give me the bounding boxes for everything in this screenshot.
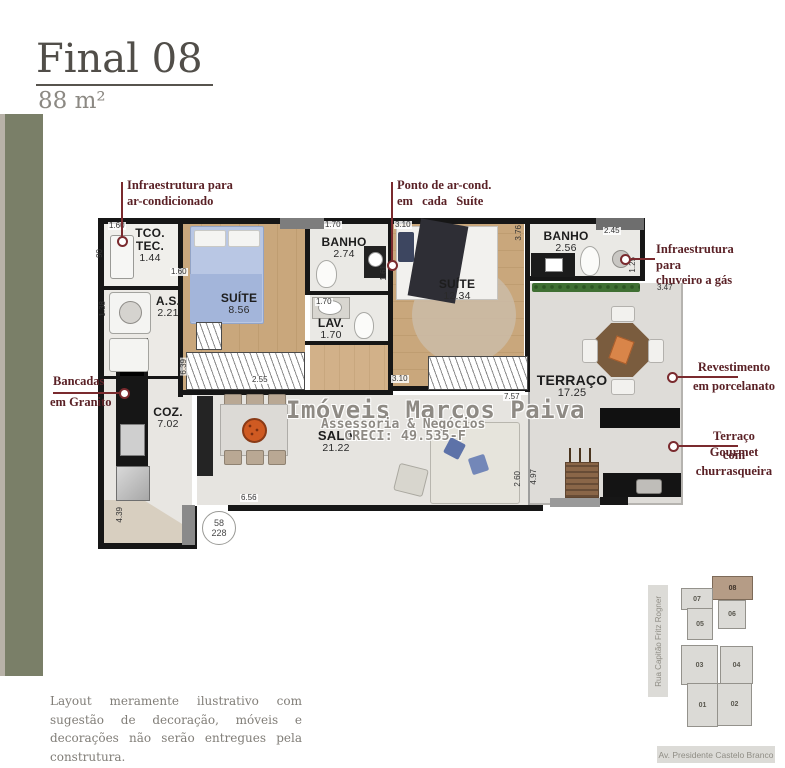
- basin-banho2: [545, 258, 563, 272]
- room-name: BANHO: [322, 235, 367, 249]
- keyplan-unit-07: 07: [681, 588, 713, 610]
- toilet-lav: [354, 312, 374, 339]
- annotation-granite: Bancadas: [53, 374, 104, 390]
- terraco-bottom-wall-seg: [600, 497, 628, 505]
- annotation-gas-marker: [620, 254, 631, 265]
- shaft-gray-1: [280, 218, 324, 229]
- kitchen-sink: [120, 424, 145, 456]
- room-area: 1.44: [126, 253, 174, 264]
- room-area: 8.56: [210, 305, 268, 316]
- washer-as-door: [119, 301, 142, 324]
- room-area: 1.70: [308, 330, 354, 341]
- dining-chair: [224, 450, 242, 465]
- terrace-chair-bottom: [611, 379, 635, 395]
- room-name: SUÍTE: [439, 277, 475, 291]
- bed-suite2-pillow: [398, 232, 414, 262]
- annotation-gourmet-marker: [668, 441, 679, 452]
- dim-suite1-bottom: 2.55: [251, 376, 269, 384]
- annotation-ac-point: Ponto de ar-cond. em cada Suíte: [397, 178, 491, 209]
- dim-sala-right: 2.60: [514, 470, 522, 488]
- room-area: 12.34: [425, 291, 489, 302]
- dim-lav-top: 1.70: [315, 298, 333, 306]
- watermark-creci: CRECI: 49.535-F: [344, 428, 466, 444]
- room-area: 7.02: [146, 419, 190, 430]
- annotation-porcelain-leader: [678, 376, 738, 378]
- dim-suite1-left: 6.39: [180, 358, 188, 376]
- annotation-line: com churrasqueira: [696, 448, 772, 478]
- keyplan-unit-03: 03: [681, 645, 718, 685]
- annotation-line: chuveiro a gás: [656, 273, 732, 287]
- annotation-granite-2: em Granito: [50, 395, 111, 411]
- bed-suite1-pillow-left: [194, 230, 226, 247]
- annotation-ac-point-marker: [387, 260, 398, 271]
- room-label-tco: TCO. TEC. 1.44: [126, 227, 174, 264]
- room-name: BANHO: [544, 229, 589, 243]
- fridge: [116, 466, 150, 501]
- dim-terraco-left: 4.97: [530, 468, 538, 486]
- keyplan-unit-05: 05: [687, 608, 713, 640]
- keyplan-unit-04: 04: [720, 646, 753, 684]
- dim-as-top: 1.60: [170, 268, 188, 276]
- unit-label: 03: [696, 662, 704, 669]
- room-label-suite1: SUÍTE 8.56: [210, 292, 268, 316]
- dining-chair: [268, 450, 286, 465]
- room-area: 21.22: [312, 443, 360, 454]
- annotation-line: Ponto de ar-cond.: [397, 178, 491, 192]
- page-area: 88 m²: [38, 88, 106, 114]
- annotation-porcelain-marker: [667, 372, 678, 383]
- annotation-line: em porcelanato: [693, 379, 775, 393]
- annotation-gas: Infraestrutura para chuveiro a gás: [656, 242, 752, 289]
- annotation-line: Infraestrutura para: [127, 178, 233, 192]
- room-name: LAV.: [318, 316, 344, 330]
- unit-label: 02: [731, 701, 739, 708]
- dim-banho2-top: 2.45: [603, 227, 621, 235]
- room-label-as: A.S. 2.21: [146, 295, 190, 319]
- annotation-gourmet-2: com churrasqueira: [686, 448, 782, 479]
- annotation-ac-infra: Infraestrutura para ar-condicionado: [127, 178, 233, 209]
- unit-badge-top: 58: [214, 518, 224, 528]
- bed-suite1-pillow-right: [228, 230, 260, 247]
- dim-as-left: 1.38: [99, 300, 107, 318]
- unit-label: 07: [693, 596, 701, 603]
- keyplan-unit-02: 02: [717, 683, 752, 726]
- room-name: TCO. TEC.: [135, 226, 164, 253]
- room-name: SUÍTE: [221, 291, 257, 305]
- annotation-line: ar-condicionado: [127, 194, 213, 208]
- room-area: 2.56: [536, 243, 596, 254]
- wardrobe-suite1: [186, 352, 305, 390]
- keyplan-street-left: Rua Capitão Fritz Rogner: [648, 585, 668, 697]
- hedge-planter: [532, 283, 640, 292]
- dim-suite2-right: 3.76: [515, 224, 523, 242]
- annotation-porcelain-2: em porcelanato: [692, 379, 776, 395]
- room-label-banho2: BANHO 2.56: [536, 230, 596, 254]
- room-name: COZ.: [153, 405, 182, 419]
- annotation-porcelain: Revestimento: [692, 360, 776, 376]
- room-label-lav: LAV. 1.70: [308, 317, 354, 341]
- room-area: 2.21: [146, 308, 190, 319]
- room-label-suite2: SUÍTE 12.34: [425, 278, 489, 302]
- grill-skewers: [569, 448, 593, 462]
- wall-bottom-sala: [228, 505, 543, 511]
- annotation-ac-infra-leader: [121, 182, 123, 237]
- hall-floor: [310, 345, 388, 390]
- dining-chair: [246, 450, 264, 465]
- unit-label: 04: [733, 662, 741, 669]
- annotation-granite-leader: [53, 392, 123, 394]
- keyplan-street-bottom: Av. Presidente Castelo Branco: [657, 746, 775, 763]
- dim-coz-left: 4.39: [116, 506, 124, 524]
- unit-label: 01: [699, 702, 707, 709]
- annotation-line: Infraestrutura para: [656, 242, 734, 272]
- grill-churrasqueira: [565, 462, 599, 498]
- entry-door: [182, 505, 195, 545]
- keyplan-unit-08: 08: [712, 576, 753, 600]
- terraco-right-edge: [681, 283, 683, 505]
- wall-h-tco-bottom: [98, 286, 183, 290]
- annotation-line: em cada Suíte: [397, 194, 483, 208]
- terrace-chair-top: [611, 306, 635, 322]
- dim-tco-left: 90: [96, 248, 104, 259]
- terrace-sink: [636, 479, 662, 494]
- annotation-line: Revestimento: [698, 360, 770, 374]
- room-name: TERRAÇO: [537, 372, 608, 388]
- annotation-granite-marker: [119, 388, 130, 399]
- room-label-coz: COZ. 7.02: [146, 406, 190, 430]
- unit-label: 08: [729, 585, 737, 592]
- terrace-chair-left: [582, 339, 598, 363]
- accent-bar-olive: [5, 114, 43, 676]
- wall-banho1-left: [305, 222, 310, 295]
- room-name: A.S.: [156, 294, 180, 308]
- annotation-ac-point-leader: [391, 182, 393, 262]
- street-left-label: Rua Capitão Fritz Rogner: [654, 596, 663, 687]
- tv-panel: [197, 396, 213, 476]
- dim-suite2-top: 3.10: [394, 221, 412, 229]
- annotation-ac-infra-marker: [117, 236, 128, 247]
- unit-label: 06: [728, 611, 736, 618]
- terrace-bench: [600, 408, 680, 428]
- pizza-plate: [242, 418, 267, 443]
- toilet-banho1: [316, 260, 337, 288]
- laundry-tank-as: [109, 338, 149, 372]
- page-title: Final 08: [36, 36, 213, 86]
- dim-banho1-top: 1.70: [324, 221, 342, 229]
- wall-banho1-bottom: [305, 291, 393, 295]
- wardrobe-suite2: [428, 356, 528, 390]
- annotation-line: Bancadas: [53, 374, 104, 388]
- unit-label: 05: [696, 621, 704, 628]
- terrace-chair-right: [648, 339, 664, 363]
- unit-badge-bottom: 228: [211, 528, 226, 538]
- flyer-canvas: Final 08 88 m²: [0, 0, 785, 768]
- terraco-bottom-gray: [550, 498, 600, 507]
- closet-suite1: [196, 322, 222, 350]
- keyplan-unit-01: 01: [687, 683, 718, 727]
- dim-hall-bottom: 3.10: [391, 375, 409, 383]
- wall-lav-bottom: [305, 341, 393, 345]
- dim-sala-bottom: 6.56: [240, 494, 258, 502]
- annotation-line: em Granito: [50, 395, 111, 409]
- street-bottom-label: Av. Presidente Castelo Branco: [659, 750, 774, 760]
- room-area: 2.74: [312, 249, 376, 260]
- unit-badge: 58 228: [202, 511, 236, 545]
- room-label-banho1: BANHO 2.74: [312, 236, 376, 260]
- keyplan-unit-06: 06: [718, 600, 746, 629]
- disclaimer-text: Layout meramente ilustrativo com sugestã…: [50, 692, 302, 766]
- annotation-gas-leader: [631, 258, 655, 260]
